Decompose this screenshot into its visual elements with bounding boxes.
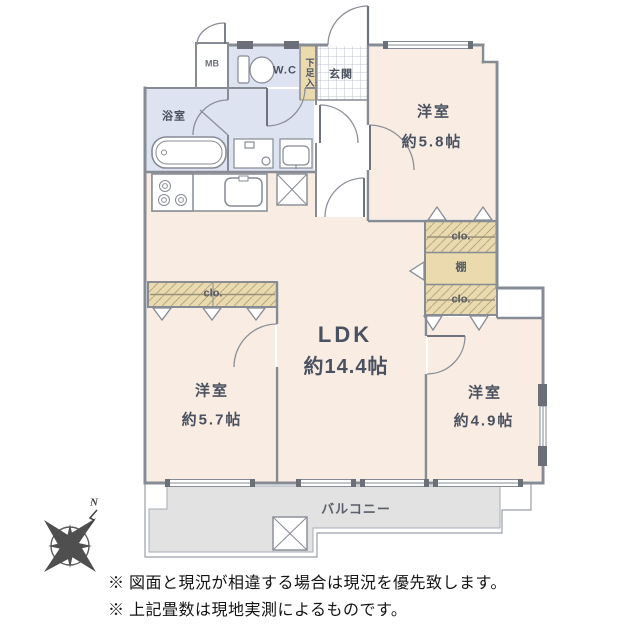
balcony-label: バルコニー [321, 503, 391, 516]
kitchen-tap [239, 176, 248, 181]
ldk-door-arc [325, 178, 364, 217]
shelf-label: 棚 [456, 263, 467, 274]
balcony [145, 483, 531, 557]
floorplan-drawing [0, 0, 639, 634]
toilet [238, 56, 274, 83]
closet-left-label: clo. [204, 289, 223, 300]
stove [152, 174, 193, 211]
balcony-floor [149, 486, 500, 552]
compass-north-arrow [88, 510, 97, 528]
disclaimer-line-2: ※ 上記畳数は現地実測によるものです。 [108, 596, 407, 620]
bedroom-tr-size: 約5.8帖 [402, 135, 463, 150]
ldk-size: 約14.4帖 [304, 357, 389, 377]
closet-mid-label: clo. [452, 295, 471, 306]
ldk-name: LDK [318, 324, 372, 346]
bedroom-bl-name: 洋室 [195, 384, 229, 399]
washing-machine [234, 139, 273, 168]
bedroom-tr-name: 洋室 [417, 105, 451, 120]
bathtub [152, 137, 226, 168]
wc-label: W.C [273, 66, 297, 77]
balcony-hatch-box [273, 517, 307, 550]
washroom-door-arc [320, 105, 358, 143]
bath-label: 浴室 [162, 112, 186, 123]
refrigerator-space [277, 174, 307, 205]
kitchen-sink [225, 178, 262, 206]
vanity-sink [280, 139, 312, 169]
closet-top-label: clo. [452, 232, 471, 243]
entrance-door-arc [328, 6, 368, 45]
floorplan-canvas: MB W.C 下足入 玄関 浴室 洋室 約5.8帖 clo. 棚 clo. cl… [0, 0, 639, 634]
mb-label: MB [205, 60, 219, 69]
entrance-label: 玄関 [329, 70, 353, 81]
disclaimer-line-1: ※ 図面と現況が相違する場合は現況を優先致します。 [108, 569, 507, 593]
compass [44, 510, 97, 572]
bedroom-bl-size: 約5.7帖 [182, 413, 243, 428]
bedroom-br-name: 洋室 [468, 386, 502, 401]
bedroom-br-size: 約4.9帖 [454, 414, 515, 429]
shoe-box-label: 下足入 [305, 58, 314, 88]
mb-door-arc [197, 23, 225, 45]
kitchen-counter [152, 174, 267, 211]
compass-n-label: N [90, 498, 98, 509]
